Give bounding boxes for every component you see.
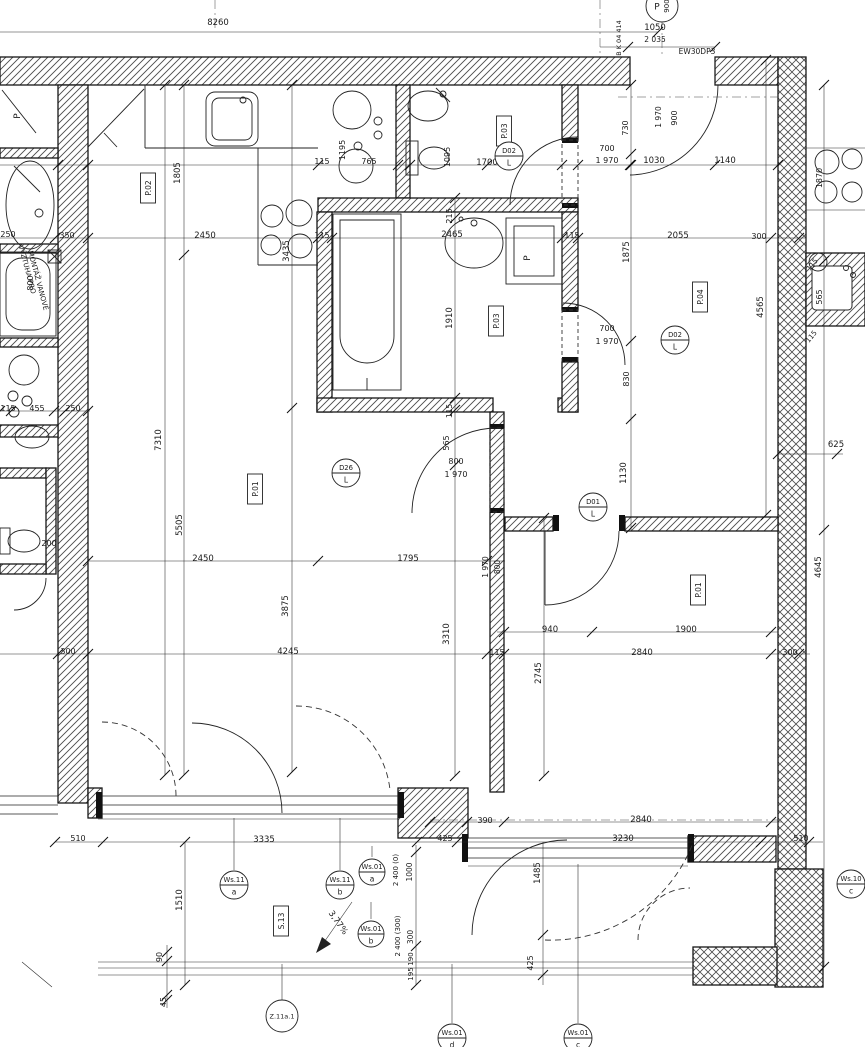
floor-plan-sheet: 826010502 035EW30DP3B K 04 4147651151195…: [0, 0, 865, 1047]
marker-Ws.01: Ws.01a: [359, 859, 385, 885]
svg-text:b: b: [338, 888, 343, 897]
dimension-label: 4565: [756, 296, 766, 318]
dimension-label: 765: [361, 157, 376, 166]
dimension-label: 565: [815, 289, 824, 304]
dimension-label: 115: [564, 231, 579, 240]
dimension-label: 1050: [644, 23, 666, 33]
dimension-label: 350: [59, 231, 74, 240]
room-label: P.04: [693, 282, 708, 312]
room-label-text: P.03: [492, 313, 501, 329]
dimension-label: 510: [793, 834, 808, 843]
dimension-label: 1875: [622, 241, 632, 263]
dimension-label: 800: [493, 560, 502, 575]
room-label-text: S.13: [277, 912, 286, 929]
svg-text:Ws.01: Ws.01: [441, 1029, 462, 1037]
room-label-text: P.01: [694, 582, 703, 598]
room-label-text: P.04: [696, 289, 705, 305]
dimension-label: 3435: [282, 240, 292, 262]
marker-P: P900: [646, 0, 678, 22]
dimension-label: 7310: [154, 429, 164, 451]
washbasin: [445, 218, 503, 268]
dimension-label: 2745: [534, 662, 544, 684]
room-label-text: P.01: [251, 481, 260, 497]
marker-Ws.01: Ws.01d: [438, 1024, 466, 1047]
dimension-label: 1000: [405, 862, 414, 881]
dimension-label: 565: [442, 435, 451, 450]
floor-plan-drawing: 826010502 035EW30DP3B K 04 4147651151195…: [0, 0, 865, 1047]
dimension-label: 3230: [612, 834, 634, 844]
svg-text:P: P: [654, 3, 660, 13]
dimension-label: 250: [0, 230, 15, 239]
svg-text:a: a: [370, 875, 375, 884]
dimension-label: 2 035: [644, 35, 666, 44]
dimension-label: 1195: [338, 140, 347, 160]
marker-Ws.01: Ws.01c: [564, 1024, 592, 1047]
svg-text:b: b: [369, 937, 374, 946]
dimension-label: 8260: [207, 18, 229, 28]
dimension-label: 830: [622, 371, 631, 386]
room-label: P.02: [141, 173, 156, 203]
marker-Ws.11: Ws.11a: [220, 871, 248, 899]
dimension-label: 45: [159, 997, 168, 1007]
svg-text:a: a: [232, 888, 237, 897]
dimension-label: 425: [437, 834, 452, 843]
dimension-label: 2055: [667, 231, 689, 241]
svg-text:c: c: [849, 887, 853, 896]
dimension-label: 1 970: [654, 106, 663, 128]
dimension-label: 3,77%: [326, 909, 350, 937]
dimension-label: 115: [314, 157, 329, 166]
marker-Ws.01: Ws.01b: [358, 921, 384, 947]
dimension-label: 800: [448, 457, 463, 466]
dimension-label: 300: [751, 232, 766, 241]
dimension-label: 940: [542, 625, 558, 635]
dimension-label: 1805: [173, 162, 183, 184]
marker-Z.11a.1: Z.11a.1: [266, 1000, 298, 1032]
wc-basin: [408, 91, 448, 121]
svg-text:D26: D26: [339, 464, 353, 472]
dimension-label: 1910: [445, 307, 455, 329]
dimension-label: 2450: [192, 554, 214, 564]
dimension-label: P: [523, 255, 533, 261]
dimension-label: 4245: [277, 647, 299, 657]
room-label-text: P.03: [500, 123, 509, 139]
dimension-label: 390: [477, 816, 492, 825]
dimension-label: 2840: [631, 648, 653, 658]
dimension-label: 190: [407, 952, 415, 965]
svg-text:Ws.10: Ws.10: [840, 875, 861, 883]
dimension-label: 1510: [175, 889, 185, 911]
dimension-label: 1700: [476, 158, 498, 168]
dimension-label: 455: [29, 404, 44, 413]
dimension-label: 115: [0, 404, 15, 413]
room-label: P.01: [248, 474, 263, 504]
dimension-label: P: [13, 113, 23, 119]
marker-D02: D02L: [495, 142, 523, 170]
svg-text:d: d: [450, 1041, 455, 1047]
dimension-label: 3335: [253, 835, 275, 845]
dimension-label: 700: [599, 324, 614, 333]
dimension-label: 115: [489, 648, 504, 657]
dimension-label: 2465: [441, 230, 463, 240]
dimension-label: 90: [155, 952, 164, 962]
svg-text:Ws.11: Ws.11: [329, 876, 350, 884]
svg-text:Ws.01: Ws.01: [360, 925, 381, 933]
marker-D01: D01L: [579, 493, 607, 521]
dimension-label: 2 400 (300): [394, 915, 402, 956]
dimension-label: 1 970: [596, 156, 619, 165]
svg-text:900: 900: [663, 0, 671, 13]
dimension-label: 215: [445, 208, 454, 223]
dimension-label: 5505: [175, 514, 185, 536]
dimension-label: 115: [445, 404, 454, 419]
dimension-label: 115: [314, 231, 329, 240]
svg-text:Z.11a.1: Z.11a.1: [270, 1013, 295, 1021]
svg-text:Ws.01: Ws.01: [567, 1029, 588, 1037]
dimension-label: 700: [599, 144, 614, 153]
bathtub: [333, 214, 401, 390]
marker-D26: D26L: [332, 459, 360, 487]
svg-text:D02: D02: [502, 147, 516, 155]
room-label-text: P.02: [144, 180, 153, 196]
dimension-label: 3875: [281, 595, 291, 617]
dimension-label: B K 04 414: [615, 20, 623, 56]
dimension-label: 1900: [675, 625, 697, 635]
dimension-label: 4645: [814, 556, 824, 578]
room-label: P.03: [489, 306, 504, 336]
dimension-label: EW30DP3: [679, 47, 716, 56]
dimension-label: 1485: [533, 862, 543, 884]
room-label: P.01: [691, 575, 706, 605]
dimension-label: 300: [406, 930, 415, 945]
svg-text:c: c: [576, 1041, 580, 1047]
dimension-label: 300: [60, 647, 75, 656]
dimension-label: 1095: [443, 147, 452, 167]
dimension-label: 250: [65, 404, 80, 413]
dimension-label: 1870: [815, 168, 824, 188]
dimension-label: 1130: [619, 462, 629, 484]
dimension-label: 730: [621, 120, 630, 135]
dimension-label: 2 400 (0): [392, 854, 400, 886]
dimension-label: 300: [782, 648, 797, 657]
dimension-label: 1 970: [445, 470, 468, 479]
dimension-label: 1140: [714, 156, 736, 166]
dimension-label: 1 970: [596, 337, 619, 346]
room-label: P.03: [497, 116, 512, 146]
dimension-label: 1795: [397, 554, 419, 564]
dimension-label: 1 970: [481, 556, 490, 578]
walls: [0, 57, 865, 987]
dimension-label: 1030: [643, 156, 665, 166]
room-label: S.13: [274, 906, 289, 936]
marker-D02: D02L: [661, 326, 689, 354]
dimension-label: 625: [828, 440, 844, 450]
dimension-label: 2840: [630, 815, 652, 825]
dimension-label: 200: [41, 539, 56, 548]
dimension-label: 195: [407, 967, 415, 980]
dimension-label: 900: [670, 110, 679, 125]
dimension-label: 425: [526, 955, 535, 970]
marker-Ws.10: Ws.10c: [837, 870, 865, 898]
dimension-label: 510: [70, 834, 85, 843]
svg-text:Ws.01: Ws.01: [361, 863, 382, 871]
dimension-label: 2450: [194, 231, 216, 241]
slope-arrowhead: [316, 937, 331, 953]
dimension-label: 3310: [442, 623, 452, 645]
svg-text:D01: D01: [586, 498, 600, 506]
marker-Ws.11: Ws.11b: [326, 871, 354, 899]
svg-text:D02: D02: [668, 331, 682, 339]
svg-text:Ws.11: Ws.11: [223, 876, 244, 884]
